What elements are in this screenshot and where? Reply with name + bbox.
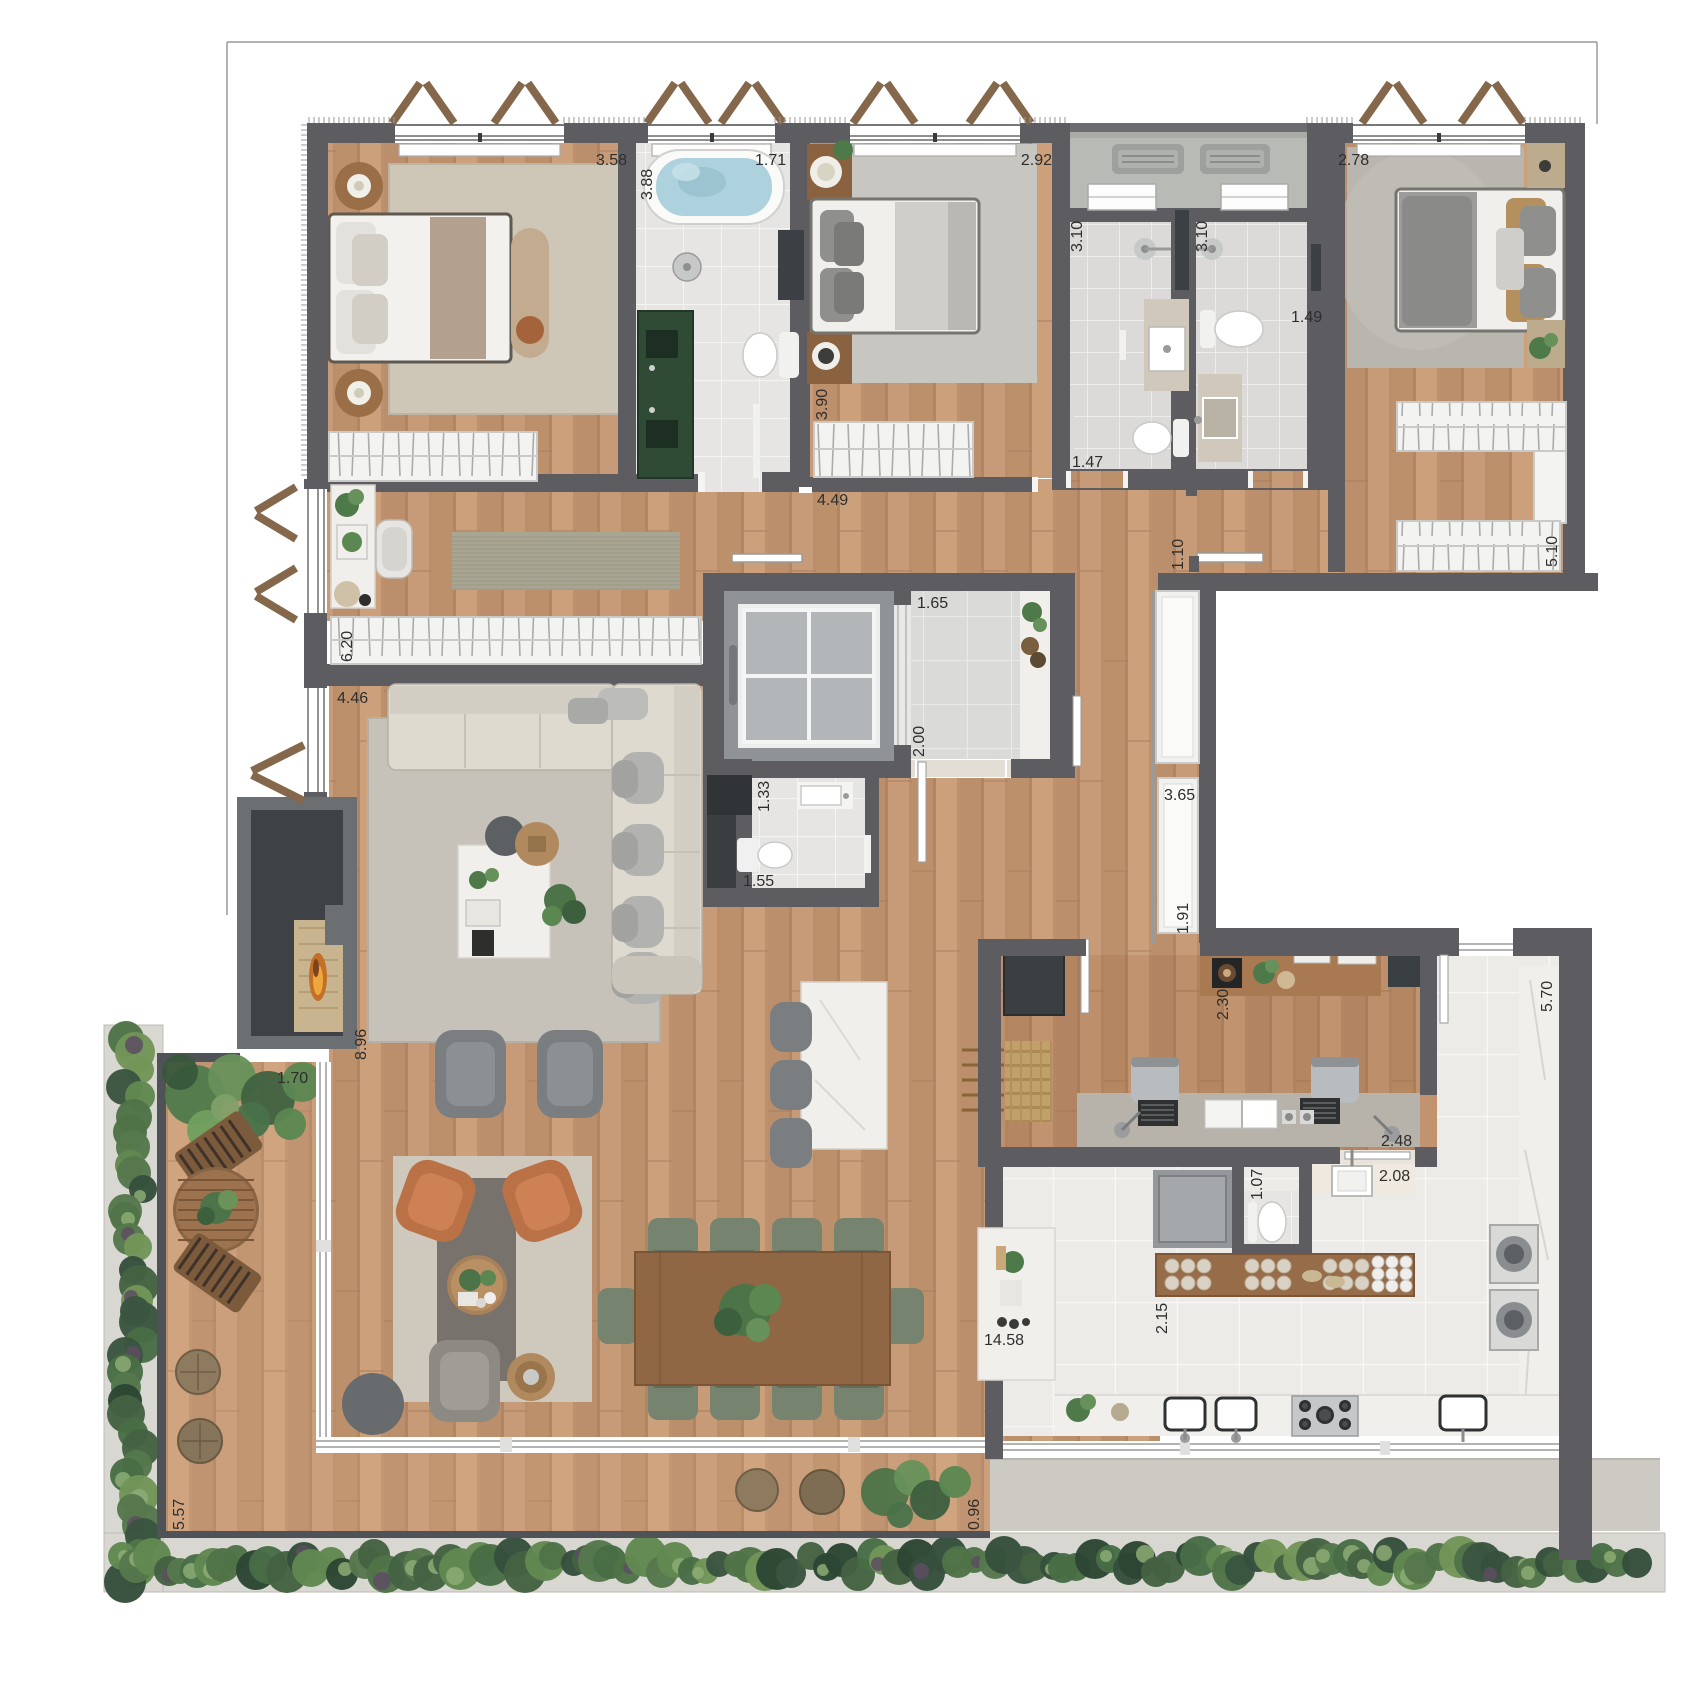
svg-text:1.10: 1.10 <box>1170 539 1187 570</box>
svg-text:4.49: 4.49 <box>817 492 848 509</box>
svg-text:2.48: 2.48 <box>1381 1133 1412 1150</box>
svg-text:1.33: 1.33 <box>756 781 773 812</box>
svg-text:1.47: 1.47 <box>1072 454 1103 471</box>
svg-text:14.58: 14.58 <box>984 1332 1024 1349</box>
svg-text:1.07: 1.07 <box>1249 1169 1266 1200</box>
svg-text:3.10: 3.10 <box>1194 221 1211 252</box>
svg-text:5.57: 5.57 <box>171 1499 188 1530</box>
svg-text:2.15: 2.15 <box>1154 1303 1171 1334</box>
svg-text:1.71: 1.71 <box>755 152 786 169</box>
svg-text:0.96: 0.96 <box>966 1499 983 1530</box>
svg-text:3.65: 3.65 <box>1164 787 1195 804</box>
svg-text:1.55: 1.55 <box>743 873 774 890</box>
svg-text:3.58: 3.58 <box>596 152 627 169</box>
svg-text:8.96: 8.96 <box>353 1029 370 1060</box>
svg-text:4.46: 4.46 <box>337 690 368 707</box>
svg-text:2.92: 2.92 <box>1021 152 1052 169</box>
svg-text:2.00: 2.00 <box>911 726 928 757</box>
svg-text:5.10: 5.10 <box>1544 536 1561 567</box>
svg-text:2.30: 2.30 <box>1215 989 1232 1020</box>
svg-text:1.70: 1.70 <box>277 1070 308 1087</box>
svg-text:3.10: 3.10 <box>1069 221 1086 252</box>
svg-text:6.20: 6.20 <box>339 631 356 662</box>
svg-text:1.91: 1.91 <box>1175 903 1192 934</box>
svg-text:2.08: 2.08 <box>1379 1168 1410 1185</box>
svg-text:3.90: 3.90 <box>814 389 831 420</box>
svg-text:3.88: 3.88 <box>639 169 656 200</box>
svg-text:5.70: 5.70 <box>1539 981 1556 1012</box>
svg-text:1.49: 1.49 <box>1291 309 1322 326</box>
svg-text:2.78: 2.78 <box>1338 152 1369 169</box>
svg-text:1.65: 1.65 <box>917 595 948 612</box>
